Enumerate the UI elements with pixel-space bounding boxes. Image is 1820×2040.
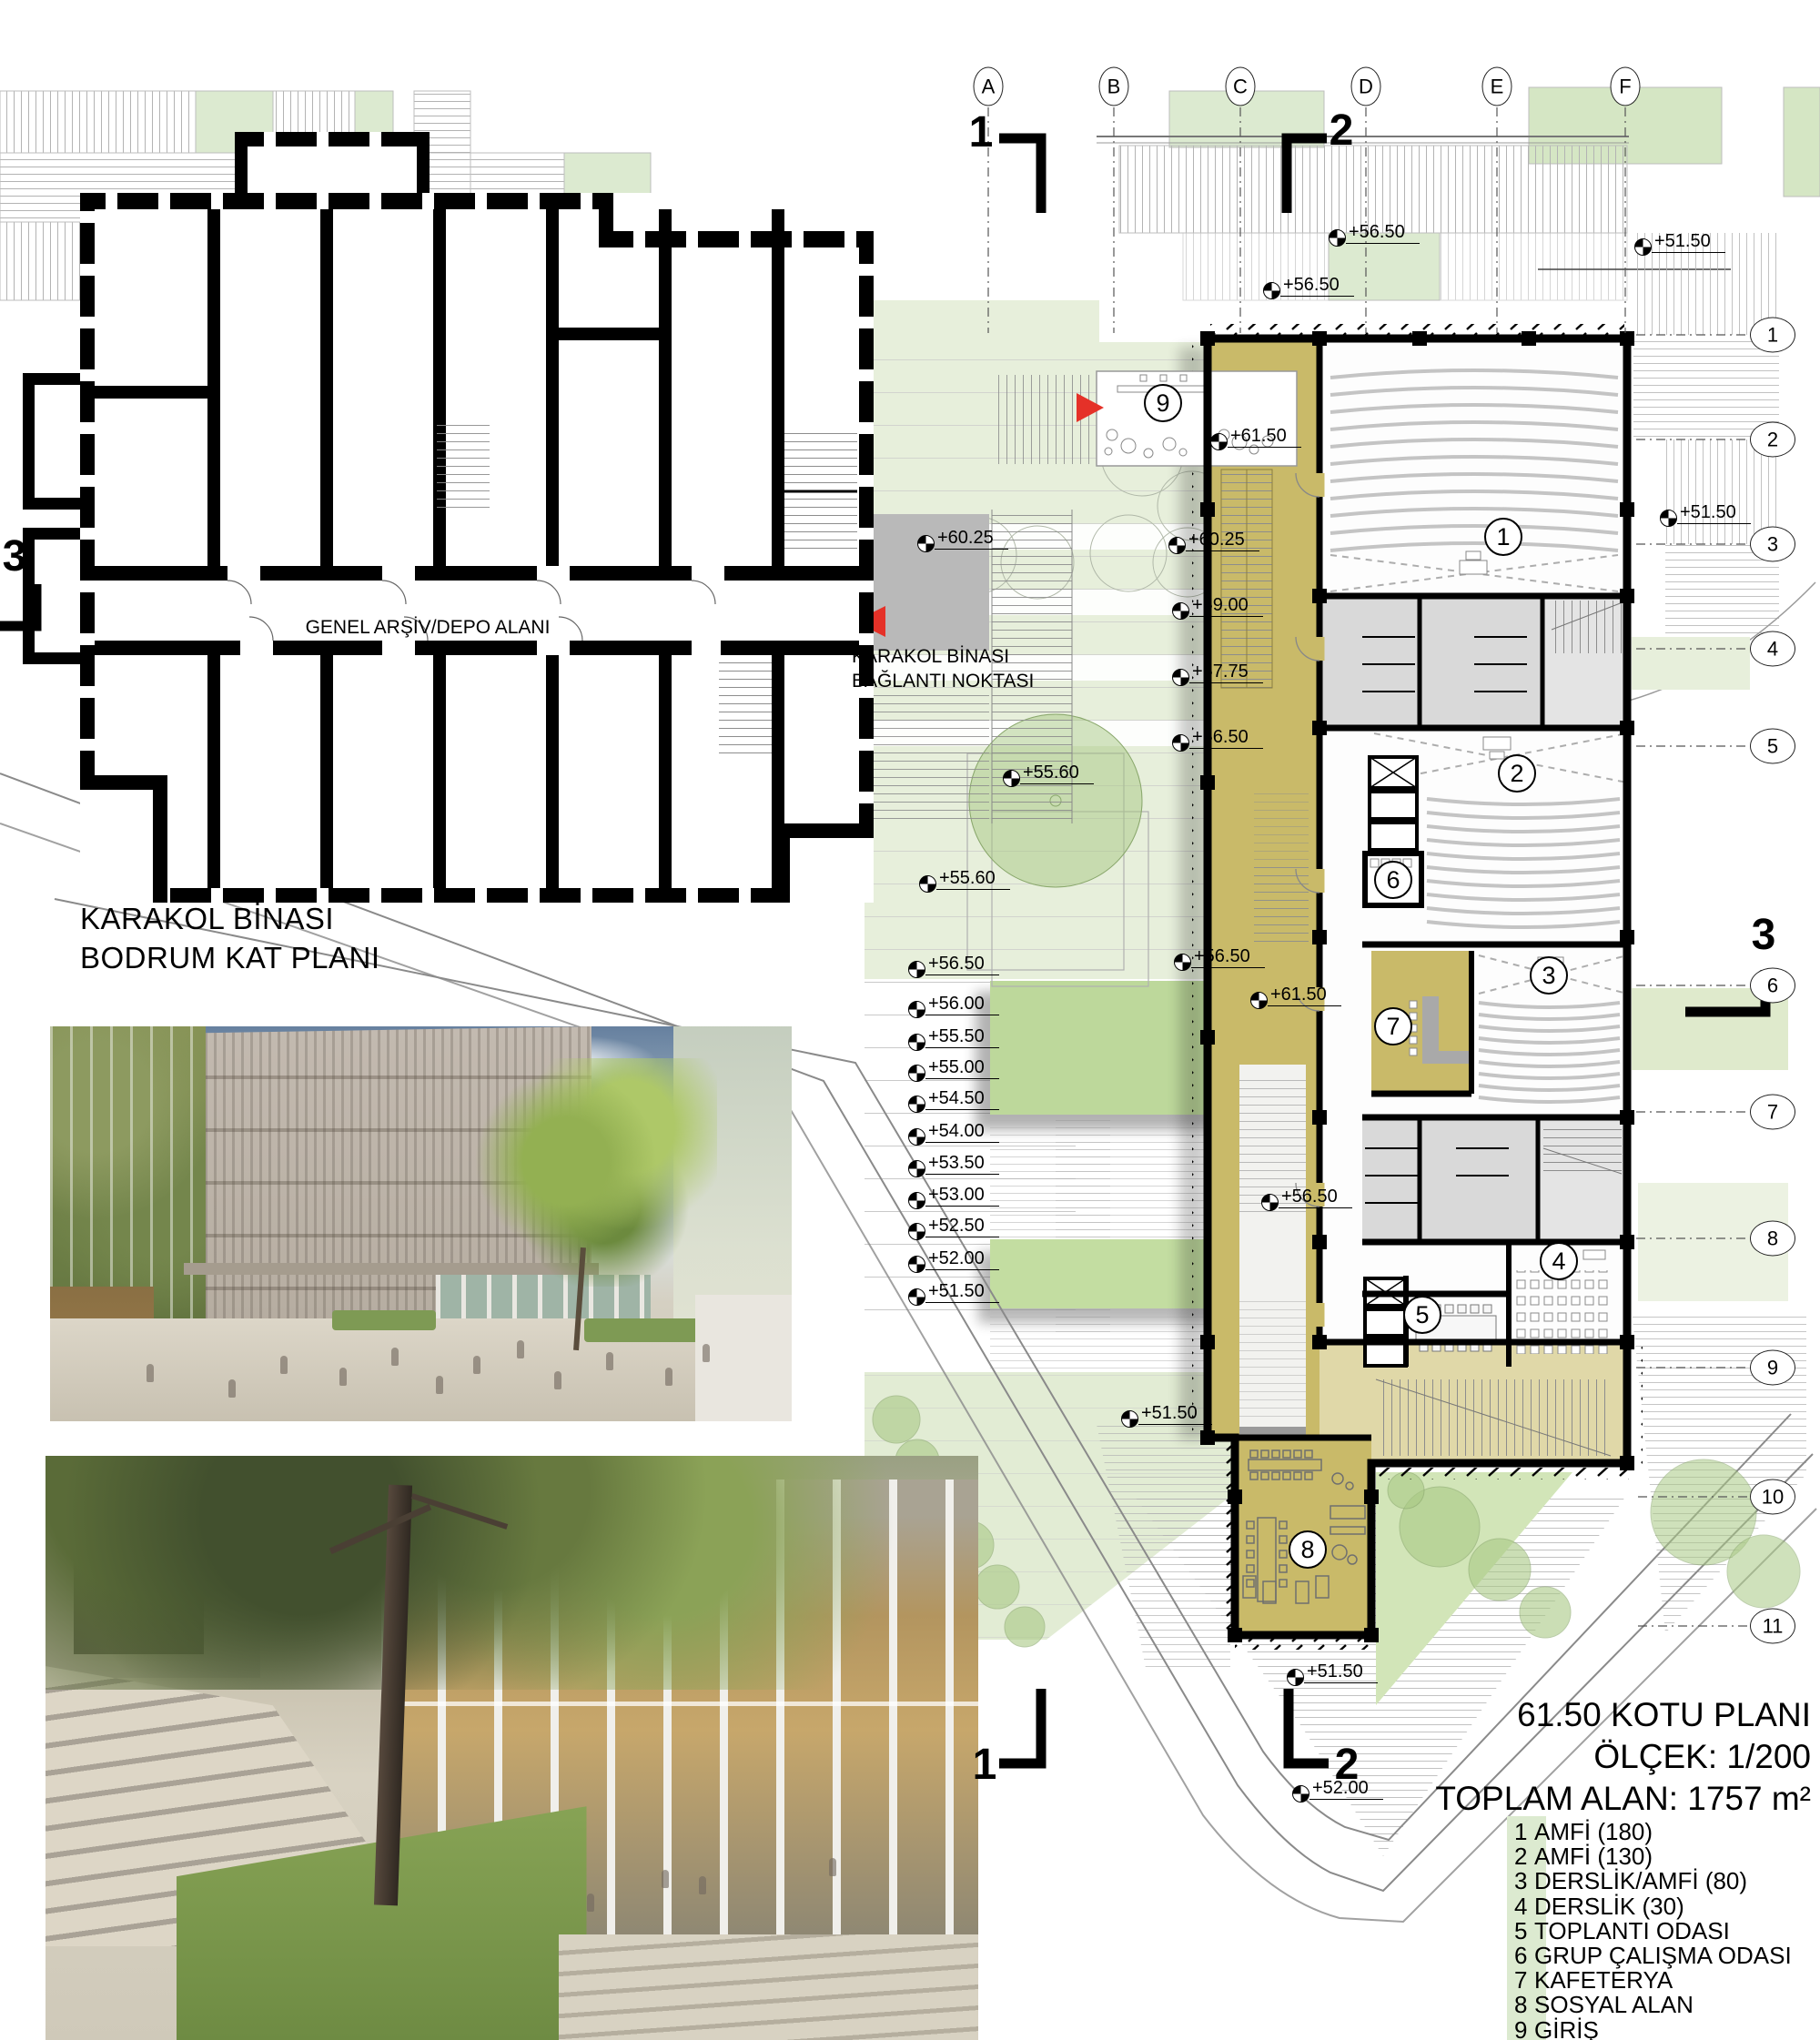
level-marker: +56.50 <box>908 961 999 982</box>
level-marker: +56.50 <box>1263 282 1354 303</box>
tree-canopy-top <box>45 1456 904 1690</box>
grid-number-bubble: 7 <box>1750 1095 1795 1130</box>
level-marker: +51.50 <box>1660 510 1751 530</box>
level-marker: +52.00 <box>908 1256 999 1277</box>
grid-letter-bubble: A <box>974 67 1004 106</box>
presentation-sheet: KARAKOL BİNASI BODRUM KAT PLANI GENEL AR… <box>0 0 1820 2040</box>
grass-patch-left <box>332 1310 436 1330</box>
level-marker-icon <box>1172 669 1189 686</box>
level-marker: +61.50 <box>1210 433 1301 454</box>
level-marker: +54.50 <box>908 1096 999 1116</box>
level-marker-icon <box>1003 770 1020 787</box>
level-marker-icon <box>908 1223 925 1240</box>
facade-floor-line <box>381 1702 978 1706</box>
level-marker-icon <box>1168 537 1186 554</box>
section-numeral: 2 <box>1330 109 1354 153</box>
legend-row: 7 KAFETERYA <box>1514 1968 1792 1993</box>
section-numeral: 1 <box>973 1743 997 1787</box>
level-marker: +51.50 <box>908 1288 999 1309</box>
level-marker: +53.00 <box>908 1192 999 1213</box>
level-marker: +60.25 <box>1168 537 1259 558</box>
level-marker-icon <box>1121 1410 1138 1428</box>
karakol-plan-title: KARAKOL BİNASI BODRUM KAT PLANI <box>80 899 380 977</box>
legend-row: 5 TOPLANTI ODASI <box>1514 1919 1792 1944</box>
section-numeral: 2 <box>1335 1743 1360 1787</box>
level-marker: +56.50 <box>1174 954 1265 975</box>
plan-title: 61.50 KOTU PLANI <box>1228 1694 1811 1736</box>
level-marker: +52.50 <box>908 1223 999 1244</box>
level-marker-icon <box>908 1256 925 1273</box>
level-marker-icon <box>1263 282 1280 299</box>
grid-number-bubble: 8 <box>1750 1221 1795 1257</box>
level-marker-icon <box>1174 954 1191 971</box>
grid-letter-bubble: B <box>1099 67 1129 106</box>
room-number-bubble: 6 <box>1374 861 1412 899</box>
karakol-room-label: GENEL ARŞİV/DEPO ALANI <box>255 617 601 639</box>
grid-letter-bubble: C <box>1226 67 1256 106</box>
grid-number-bubble: 10 <box>1750 1480 1795 1515</box>
section-numeral: 3 <box>1752 914 1776 957</box>
level-marker-icon <box>908 1192 925 1209</box>
level-marker: +55.00 <box>908 1065 999 1086</box>
level-marker: +55.60 <box>919 875 1010 896</box>
legend-row: 9 GİRİŞ <box>1514 2018 1792 2040</box>
room-number-bubble: 5 <box>1403 1296 1441 1334</box>
grid-number-bubble: 3 <box>1750 527 1795 562</box>
level-marker: +61.50 <box>1250 992 1341 1013</box>
tree-canopy <box>465 1058 717 1288</box>
level-marker: +56.50 <box>1261 1194 1352 1215</box>
level-marker-icon <box>1172 602 1189 620</box>
level-marker: +57.75 <box>1172 669 1263 690</box>
room-number-bubble: 1 <box>1484 518 1522 556</box>
level-marker-icon <box>908 961 925 978</box>
level-marker-icon <box>1261 1194 1279 1211</box>
level-marker: +55.50 <box>908 1034 999 1055</box>
grid-number-bubble: 2 <box>1750 422 1795 458</box>
level-marker-icon <box>908 1001 925 1018</box>
steps-bottom <box>559 1934 978 2040</box>
level-marker: +56.50 <box>1172 734 1263 755</box>
level-marker-icon <box>908 1128 925 1146</box>
level-marker: +59.00 <box>1172 602 1263 623</box>
legend: 1 AMFİ (180) 2 AMFİ (130) 3 DERSLİK/AMFİ… <box>1514 1820 1792 2040</box>
level-marker-icon <box>917 535 935 552</box>
grid-letter-bubble: E <box>1482 67 1512 106</box>
level-marker-icon <box>1172 734 1189 752</box>
level-marker: +53.50 <box>908 1160 999 1181</box>
level-marker-icon <box>1250 992 1268 1009</box>
karakol-basement-plan <box>23 132 874 903</box>
level-marker: +54.00 <box>908 1128 999 1149</box>
grid-number-bubble: 4 <box>1750 631 1795 667</box>
grass-patch-right <box>584 1318 703 1342</box>
level-marker-icon <box>908 1288 925 1306</box>
level-marker-icon <box>908 1096 925 1113</box>
plan-scale: ÖLÇEK: 1/200 <box>1228 1736 1811 1778</box>
grid-number-bubble: 9 <box>1750 1350 1795 1386</box>
connection-point-label: KARAKOL BİNASI BAĞLANTI NOKTASI <box>852 644 1034 693</box>
room-number-bubble: 7 <box>1374 1007 1412 1045</box>
grid-number-bubble: 11 <box>1750 1609 1795 1644</box>
grid-number-bubble: 6 <box>1750 968 1795 1004</box>
level-marker-icon <box>1287 1669 1304 1686</box>
grid-number-bubble: 1 <box>1750 318 1795 353</box>
room-number-bubble: 4 <box>1540 1242 1578 1280</box>
level-marker: +51.50 <box>1121 1410 1212 1431</box>
legend-row: 3 DERSLİK/AMFİ (80) <box>1514 1869 1792 1894</box>
level-marker-icon <box>908 1034 925 1051</box>
level-marker-icon <box>1210 433 1228 450</box>
legend-row: 6 GRUP ÇALIŞMA ODASI <box>1514 1944 1792 1968</box>
room-number-bubble: 9 <box>1144 384 1182 422</box>
level-marker: +56.50 <box>1329 229 1420 250</box>
room-number-bubble: 2 <box>1498 754 1536 793</box>
level-marker-icon <box>1292 1785 1309 1803</box>
section-numeral: 3 <box>3 535 27 579</box>
section-numeral: 1 <box>969 111 994 155</box>
grid-number-bubble: 5 <box>1750 729 1795 764</box>
level-marker: +56.00 <box>908 1001 999 1022</box>
level-marker-icon <box>908 1065 925 1082</box>
level-marker-icon <box>908 1160 925 1177</box>
level-marker: +60.25 <box>917 535 1008 556</box>
legend-row: 2 AMFİ (130) <box>1514 1844 1792 1869</box>
room-number-bubble: 8 <box>1289 1530 1327 1569</box>
rendering-courtyard <box>45 1456 978 2040</box>
level-marker-icon <box>1329 229 1346 247</box>
legend-row: 8 SOSYAL ALAN <box>1514 1993 1792 2017</box>
room-number-bubble: 3 <box>1530 956 1568 995</box>
legend-row: 1 AMFİ (180) <box>1514 1820 1792 1844</box>
level-marker: +55.60 <box>1003 770 1094 791</box>
level-marker-icon <box>1660 510 1677 527</box>
level-marker: +51.50 <box>1287 1669 1378 1690</box>
grid-letter-bubble: D <box>1351 67 1381 106</box>
level-marker: +51.50 <box>1634 238 1725 259</box>
rendering-exterior-entrance <box>50 1026 792 1421</box>
level-marker-icon <box>919 875 936 893</box>
grid-letter-bubble: F <box>1611 67 1641 106</box>
legend-row: 4 DERSLİK (30) <box>1514 1894 1792 1919</box>
level-marker-icon <box>1634 238 1652 256</box>
